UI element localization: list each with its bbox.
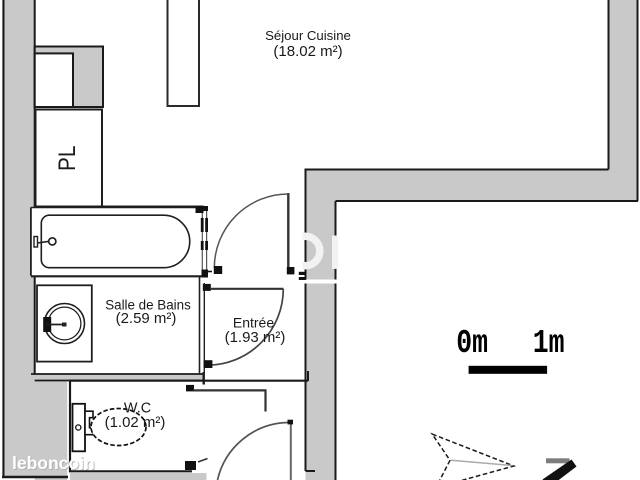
svg-text:Séjour Cuisine: Séjour Cuisine [265,28,351,43]
svg-text:0m: 0m [456,325,488,363]
svg-text:1m: 1m [533,325,565,363]
svg-text:(18.02 m²): (18.02 m²) [273,43,342,60]
svg-text:PL: PL [54,146,81,171]
svg-text:(1.02 m²): (1.02 m²) [105,414,166,431]
svg-text:leboncoin: leboncoin [12,453,95,473]
svg-text:(2.59 m²): (2.59 m²) [116,310,177,327]
svg-text:(1.93 m²): (1.93 m²) [225,329,286,346]
